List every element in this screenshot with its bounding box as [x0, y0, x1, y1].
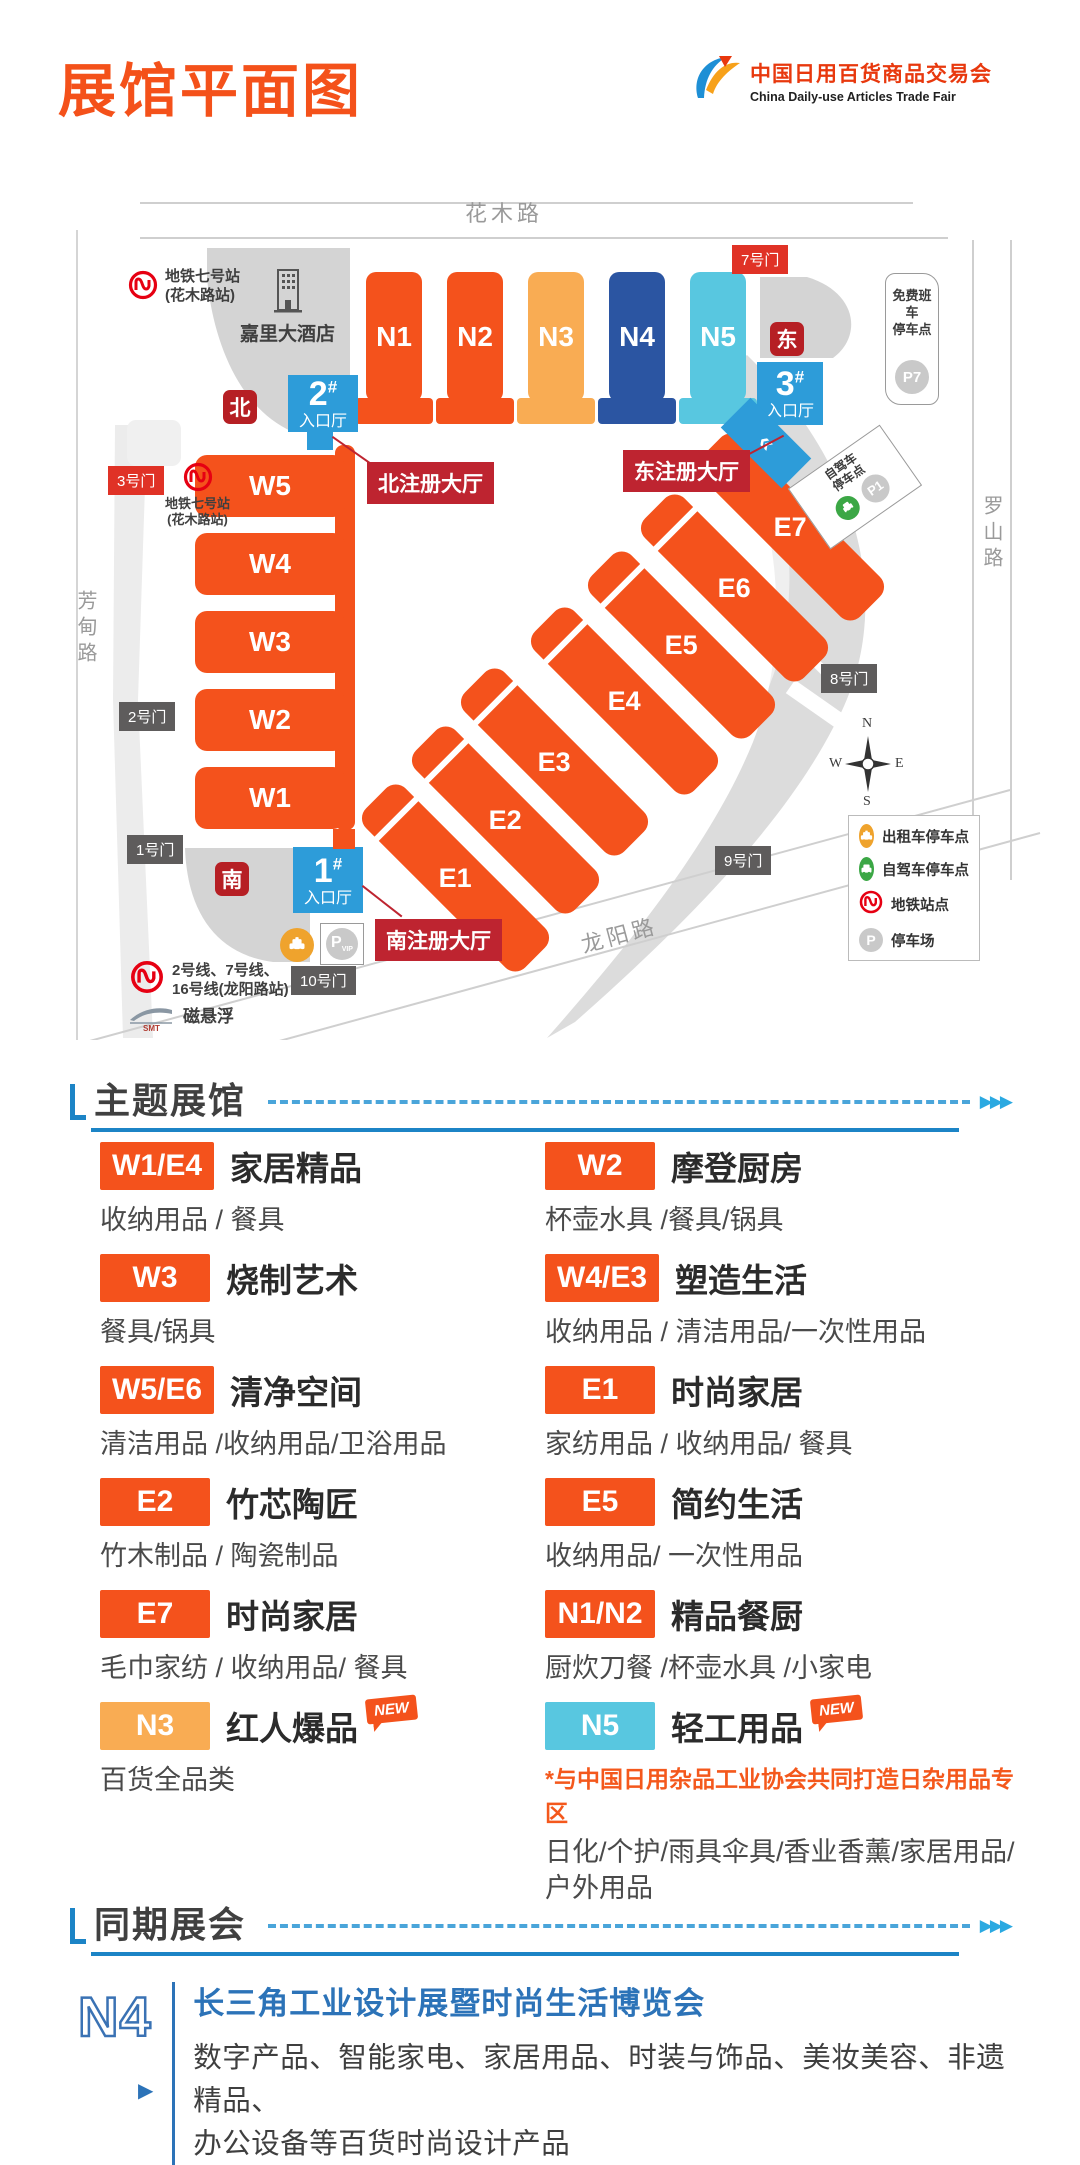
hall-note: *与中国日用杂品工业协会共同打造日杂用品专区 [545, 1760, 1020, 1828]
maglev-smt-label: SMT [143, 1024, 160, 1033]
theme-entry-w1e4: W1/E4家居精品 收纳用品 / 餐具 [100, 1140, 545, 1252]
theme-entry-e1: E1时尚家居 家纺用品 / 收纳用品/ 餐具 [545, 1364, 1020, 1476]
section-underline [91, 1952, 959, 1956]
metro-longyang-label-line1: 2号线、7号线、 [172, 962, 289, 981]
south-registration-hall: 南注册大厅 [375, 919, 502, 961]
metro-icon [183, 462, 213, 497]
hall-categories: 收纳用品 / 清洁用品/一次性用品 [545, 1314, 1020, 1350]
hall-badge: N3 [100, 1702, 210, 1750]
hall-theme-title: 摩登厨房 [671, 1150, 803, 1187]
entrance-2-stub [307, 432, 333, 450]
hall-badge: W3 [100, 1254, 210, 1302]
east-registration-hall: 东注册大厅 [623, 450, 750, 492]
hall-badge: W1/E4 [100, 1142, 214, 1190]
concurrent-section-header: 同期展会 ▶▶▶ [70, 1896, 1010, 1956]
section-dashed-line [268, 1100, 970, 1104]
hall-categories: 厨炊刀餐 /杯壶水具 /小家电 [545, 1650, 1020, 1686]
hall-w1: W1 [195, 767, 345, 829]
page-title: 展馆平面图 [58, 44, 363, 128]
hall-categories: 清洁用品 /收纳用品/卫浴用品 [100, 1426, 545, 1462]
hall-n5: N5 [690, 272, 746, 402]
vip-parking-badge: PVIP [331, 934, 353, 953]
theme-entry-w2: W2摩登厨房 杯壶水具 /餐具/锅具 [545, 1140, 1020, 1252]
metro-huamu2-label-line2: (花木路站) [165, 512, 230, 528]
hotel-label: 嘉里大酒店 [240, 323, 335, 347]
entrance-hall-1: 1# 入口厅 [293, 847, 363, 913]
concurrent-section-title: 同期展会 [94, 1896, 246, 1948]
section-bracket [70, 1084, 86, 1120]
hall-w2: W2 [195, 689, 345, 751]
maglev-label: 磁悬浮 [183, 1006, 234, 1027]
hall-theme-title: 竹芯陶匠 [226, 1486, 358, 1523]
triple-arrow-icon: ▶▶▶ [980, 1916, 1010, 1936]
section-underline [91, 1128, 959, 1132]
concurrent-expo-name: 长三角工业设计展暨时尚生活博览会 [193, 1978, 1018, 2023]
legend-row: 出租车停车点 [859, 824, 969, 848]
shuttle-parking-label-line2: 停车点 [888, 322, 936, 339]
legend-row: 自驾车停车点 [859, 857, 969, 881]
hall-w4: W4 [195, 533, 345, 595]
metro-huamu2-label-line1: 地铁七号站 [165, 496, 230, 512]
gate-7: 7号门 [732, 245, 788, 274]
taxi-icon [280, 928, 314, 962]
divider [172, 1982, 176, 2165]
hall-badge: W2 [545, 1142, 655, 1190]
concurrent-expo: N4 长三角工业设计展暨时尚生活博览会 数字产品、智能家电、家居用品、时装与饰品… [78, 1978, 1018, 2165]
car-icon [859, 857, 874, 881]
hall-n4: N4 [609, 272, 665, 402]
legend-row: 地铁站点 [859, 890, 969, 919]
direction-badge-south: 南 [215, 862, 249, 896]
road-label-fangdian: 芳甸路 [71, 590, 100, 668]
theme-entry-n5: N5轻工用品NEW *与中国日用杂品工业协会共同打造日杂用品专区 日化/个护/雨… [545, 1700, 1020, 1907]
hall-theme-title: 红人爆品 [226, 1710, 358, 1747]
car-icon [831, 491, 864, 524]
shuttle-parking-label-line1: 免费班车 [888, 288, 936, 322]
legend-label-car: 自驾车停车点 [882, 859, 969, 880]
hotel-icon [272, 266, 304, 319]
gate-8: 8号门 [821, 664, 877, 693]
metro-icon [128, 270, 158, 305]
new-flag: NEW [810, 1695, 863, 1725]
road-label-huamu: 花木路 [465, 196, 543, 228]
fair-name-en: China Daily-use Articles Trade Fair [750, 90, 992, 104]
hall-theme-title: 家居精品 [230, 1150, 362, 1187]
hall-theme-title: 时尚家居 [671, 1374, 803, 1411]
hall-badge: N5 [545, 1702, 655, 1750]
theme-entry-n1n2: N1/N2精品餐厨 厨炊刀餐 /杯壶水具 /小家电 [545, 1588, 1020, 1700]
gate-1: 1号门 [127, 835, 183, 864]
section-bracket [70, 1908, 86, 1944]
hall-badge: E5 [545, 1478, 655, 1526]
hall-n2: N2 [447, 272, 503, 402]
hall-theme-title: 简约生活 [671, 1486, 803, 1523]
hall-categories: 杯壶水具 /餐具/锅具 [545, 1202, 1020, 1238]
hall-badge: E7 [100, 1590, 210, 1638]
hall-categories: 收纳用品/ 一次性用品 [545, 1538, 1020, 1574]
shuttle-parking-box: 免费班车 停车点 P7 [885, 273, 939, 405]
theme-entry-w3: W3烧制艺术 餐具/锅具 [100, 1252, 545, 1364]
taxi-icon [859, 824, 874, 848]
hall-categories: 家纺用品 / 收纳用品/ 餐具 [545, 1426, 1020, 1462]
hall-badge: E2 [100, 1478, 210, 1526]
gate-10: 10号门 [291, 966, 356, 995]
theme-entry-n3: N3红人爆品NEW 百货全品类 [100, 1700, 545, 1907]
theme-entry-e5: E5简约生活 收纳用品/ 一次性用品 [545, 1476, 1020, 1588]
legend-row: P 停车场 [859, 928, 969, 952]
hall-categories: 收纳用品 / 餐具 [100, 1202, 545, 1238]
entrance-1-stub [333, 829, 355, 849]
hall-theme-title: 烧制艺术 [226, 1262, 358, 1299]
theme-entry-e7: E7时尚家居 毛巾家纺 / 收纳用品/ 餐具 [100, 1588, 545, 1700]
hall-n2-base [436, 398, 514, 424]
hall-badge: E1 [545, 1366, 655, 1414]
hall-categories: 百货全品类 [100, 1762, 545, 1798]
hall-n3: N3 [528, 272, 584, 402]
hall-badge: W4/E3 [545, 1254, 659, 1302]
metro-longyang-label-line2: 16号线(龙阳路站) [172, 981, 289, 1000]
section-dashed-line [268, 1924, 970, 1928]
fair-logo: 中国日用百货商品交易会 China Daily-use Articles Tra… [688, 52, 992, 109]
gate-3: 3号门 [108, 466, 164, 495]
hall-badge: W5/E6 [100, 1366, 214, 1414]
compass: N E S W [833, 718, 903, 810]
hall-categories: 竹木制品 / 陶瓷制品 [100, 1538, 545, 1574]
venue-map: 花木路 芳甸路 罗山路 龙阳路 地铁七号站 (花木路站) 嘉里大酒店 北 东 南… [35, 140, 1045, 1040]
map-legend: 出租车停车点 自驾车停车点 地铁站点 P 停车场 [848, 815, 980, 961]
theme-entry-e2: E2竹芯陶匠 竹木制品 / 陶瓷制品 [100, 1476, 545, 1588]
concurrent-expo-desc-line1: 数字产品、智能家电、家居用品、时装与饰品、美妆美容、非遗精品、 [193, 2037, 1018, 2123]
gate-2: 2号门 [119, 702, 175, 731]
theme-entry-w5e6: W5/E6清净空间 清洁用品 /收纳用品/卫浴用品 [100, 1364, 545, 1476]
hall-w3: W3 [195, 611, 345, 673]
legend-label-taxi: 出租车停车点 [882, 826, 969, 847]
north-registration-hall: 北注册大厅 [367, 462, 494, 504]
direction-badge-east: 东 [770, 322, 804, 356]
triple-arrow-icon: ▶▶▶ [980, 1092, 1010, 1112]
play-arrow-icon: ▶ [138, 2078, 153, 2103]
hall-categories: 毛巾家纺 / 收纳用品/ 餐具 [100, 1650, 545, 1686]
metro-icon [130, 960, 164, 999]
hall-theme-title: 清净空间 [230, 1374, 362, 1411]
hall-n1: N1 [366, 272, 422, 402]
theme-section-title: 主题展馆 [94, 1072, 246, 1124]
fair-name-cn: 中国日用百货商品交易会 [750, 58, 992, 88]
hall-badge: N1/N2 [545, 1590, 655, 1638]
gate-9: 9号门 [715, 846, 771, 875]
theme-hall-grid: W1/E4家居精品 收纳用品 / 餐具 W2摩登厨房 杯壶水具 /餐具/锅具 W… [100, 1140, 1020, 1907]
vip-parking-box: PVIP [320, 923, 364, 965]
hall-n3-base [517, 398, 595, 424]
p7-parking-badge: P7 [895, 360, 929, 394]
legend-label-metro: 地铁站点 [891, 894, 949, 915]
metro-icon [859, 890, 883, 919]
hall-theme-title: 精品餐厨 [671, 1598, 803, 1635]
hall-theme-title: 塑造生活 [675, 1262, 807, 1299]
theme-entry-w4e3: W4/E3塑造生活 收纳用品 / 清洁用品/一次性用品 [545, 1252, 1020, 1364]
legend-label-parking: 停车场 [891, 930, 935, 951]
hall-n1-base [355, 398, 433, 424]
parking-icon: P [859, 928, 883, 952]
hall-categories: 餐具/锅具 [100, 1314, 545, 1350]
concurrent-expo-desc-line2: 办公设备等百货时尚设计产品 [193, 2123, 1018, 2165]
hall-theme-title: 时尚家居 [226, 1598, 358, 1635]
hall-theme-title: 轻工用品 [671, 1710, 803, 1747]
entrance-hall-2: 2# 入口厅 [288, 375, 358, 432]
fair-logo-swoosh-icon [688, 52, 742, 109]
road-label-luoshan: 罗山路 [977, 495, 1006, 573]
direction-badge-north: 北 [223, 390, 257, 424]
metro-huamu-label-line2: (花木路站) [165, 287, 240, 306]
hall-n4-code: N4 [78, 1984, 152, 2049]
metro-huamu-label-line1: 地铁七号站 [165, 268, 240, 287]
theme-section-header: 主题展馆 ▶▶▶ [70, 1072, 1010, 1132]
new-flag: NEW [365, 1695, 418, 1725]
hall-n4-base [598, 398, 676, 424]
